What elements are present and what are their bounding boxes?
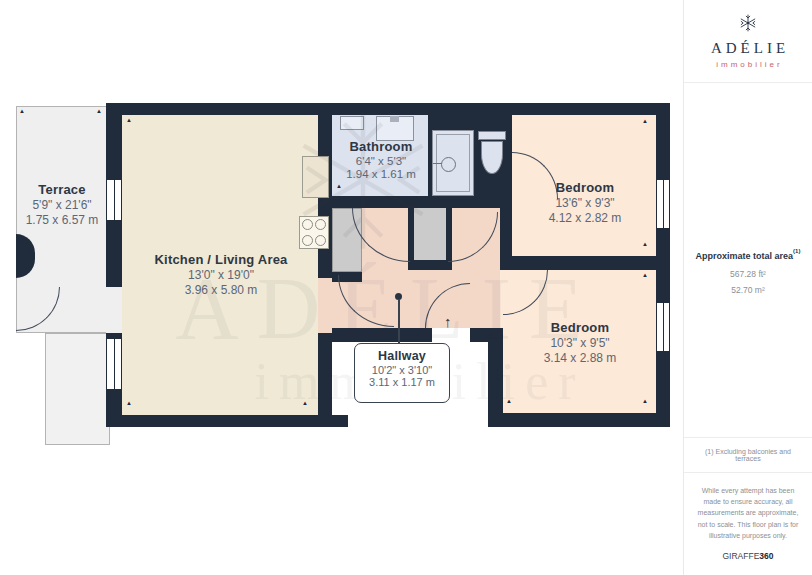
room-dim-imperial: 5'9" x 21'6" bbox=[26, 198, 99, 212]
total-area-footnote-ref: (1) bbox=[793, 248, 800, 254]
room-dim-metric: 1.75 x 6.57 m bbox=[26, 213, 99, 227]
total-area-block: Approximate total area(1) 567.28 ft² 52.… bbox=[684, 245, 812, 295]
dimension-marker-icon: ▲ bbox=[126, 117, 132, 123]
room-dim-metric: 3.96 x 5.80 m bbox=[154, 283, 287, 297]
entrance-arrow-icon: ↑ bbox=[444, 314, 452, 329]
floorplan-page: ▲ ▲ ▲ ▲ ▲ ▲ ▲ ▲ ▲ ▲ ▲ ↑ ADÉLIE immobilie… bbox=[0, 0, 812, 575]
room-dim-metric: 4.12 x 2.82 m bbox=[549, 211, 622, 225]
stove-icon bbox=[299, 216, 329, 249]
wall bbox=[332, 328, 432, 342]
brand-logo: ADÉLIE immobilier bbox=[684, 0, 812, 83]
window bbox=[106, 180, 122, 220]
snowflake-icon bbox=[738, 13, 758, 37]
total-area-title: Approximate total area bbox=[696, 251, 794, 261]
window bbox=[106, 339, 122, 389]
kitchen-counter bbox=[302, 156, 329, 198]
brand-tagline: immobilier bbox=[716, 60, 782, 69]
wall bbox=[108, 103, 670, 115]
room-dim-imperial: 6'4" x 5'3" bbox=[346, 155, 416, 167]
giraffe360-credit: GIRAFFE360 bbox=[684, 549, 812, 575]
room-name: Bedroom bbox=[549, 180, 622, 195]
room-dim-imperial: 13'0" x 19'0" bbox=[154, 268, 287, 282]
brand-name: ADÉLIE bbox=[711, 40, 789, 57]
disclaimer: While every attempt has been made to ens… bbox=[684, 473, 812, 549]
wall bbox=[488, 413, 670, 427]
window bbox=[656, 180, 670, 228]
sidebar-middle: Approximate total area(1) 567.28 ft² 52.… bbox=[684, 83, 812, 437]
bathroom-counter bbox=[340, 116, 364, 130]
dimension-marker-icon: ▲ bbox=[19, 108, 25, 114]
giraffe360-suffix: 360 bbox=[759, 551, 773, 561]
wall bbox=[106, 103, 122, 180]
room-name: Hallway bbox=[355, 349, 449, 363]
room-dim-imperial: 10'2" x 3'10" bbox=[355, 364, 449, 376]
room-terrace-lower bbox=[45, 333, 110, 445]
label-bedroom-2: Bedroom 10'3" x 9'5" 3.14 x 2.88 m bbox=[544, 320, 617, 365]
floorplan-canvas: ▲ ▲ ▲ ▲ ▲ ▲ ▲ ▲ ▲ ▲ ▲ ↑ ADÉLIE immobilie… bbox=[0, 0, 683, 575]
room-dim-imperial: 10'3" x 9'5" bbox=[544, 336, 617, 350]
toilet-icon bbox=[478, 131, 506, 140]
total-area-m: 52.70 m² bbox=[684, 285, 812, 295]
kitchen-hall-opening bbox=[318, 278, 332, 333]
label-bathroom: Bathroom 6'4" x 5'3" 1.94 x 1.61 m bbox=[346, 139, 416, 180]
dimension-marker-icon: ▲ bbox=[302, 400, 308, 406]
wall bbox=[106, 415, 348, 427]
footnote: (1) Excluding balconies and terraces bbox=[684, 437, 812, 473]
dimension-marker-icon: ▲ bbox=[642, 398, 648, 404]
room-dim-imperial: 13'6" x 9'3" bbox=[549, 196, 622, 210]
room-dim-metric: 3.14 x 2.88 m bbox=[544, 351, 617, 365]
label-kitchen-living: Kitchen / Living Area 13'0" x 19'0" 3.96… bbox=[154, 252, 287, 297]
label-terrace: Terrace 5'9" x 21'6" 1.75 x 6.57 m bbox=[26, 182, 99, 227]
wall bbox=[500, 256, 670, 270]
terrace-door-opening bbox=[106, 287, 122, 333]
dimension-marker-icon: ▲ bbox=[642, 241, 648, 247]
dimension-marker-icon: ▲ bbox=[96, 108, 102, 114]
wall bbox=[500, 200, 512, 256]
sink-icon bbox=[376, 116, 414, 141]
closet bbox=[414, 208, 446, 260]
room-dim-metric: 1.94 x 1.61 m bbox=[346, 168, 416, 180]
total-area-ft: 567.28 ft² bbox=[684, 269, 812, 279]
label-hallway-callout: Hallway 10'2" x 3'10" 3.11 x 1.17 m bbox=[354, 343, 450, 403]
wall bbox=[106, 220, 122, 287]
room-name: Kitchen / Living Area bbox=[154, 252, 287, 267]
dimension-marker-icon: ▲ bbox=[126, 400, 132, 406]
dimension-marker-icon: ▲ bbox=[506, 398, 512, 404]
room-dim-metric: 3.11 x 1.17 m bbox=[355, 376, 449, 388]
info-sidebar: ADÉLIE immobilier Approximate total area… bbox=[683, 0, 812, 575]
dimension-marker-icon: ▲ bbox=[642, 118, 648, 124]
shower-icon bbox=[432, 130, 474, 196]
wall bbox=[318, 333, 332, 427]
label-bedroom-1: Bedroom 13'6" x 9'3" 4.12 x 2.82 m bbox=[549, 180, 622, 225]
room-name: Bathroom bbox=[346, 139, 416, 154]
window bbox=[656, 303, 670, 351]
callout-leader-line bbox=[398, 299, 400, 344]
dimension-marker-icon: ▲ bbox=[642, 272, 648, 278]
room-name: Terrace bbox=[26, 182, 99, 197]
dimension-marker-icon: ▲ bbox=[336, 183, 342, 189]
room-name: Bedroom bbox=[544, 320, 617, 335]
giraffe360-brand: GIRAFFE bbox=[722, 551, 759, 561]
